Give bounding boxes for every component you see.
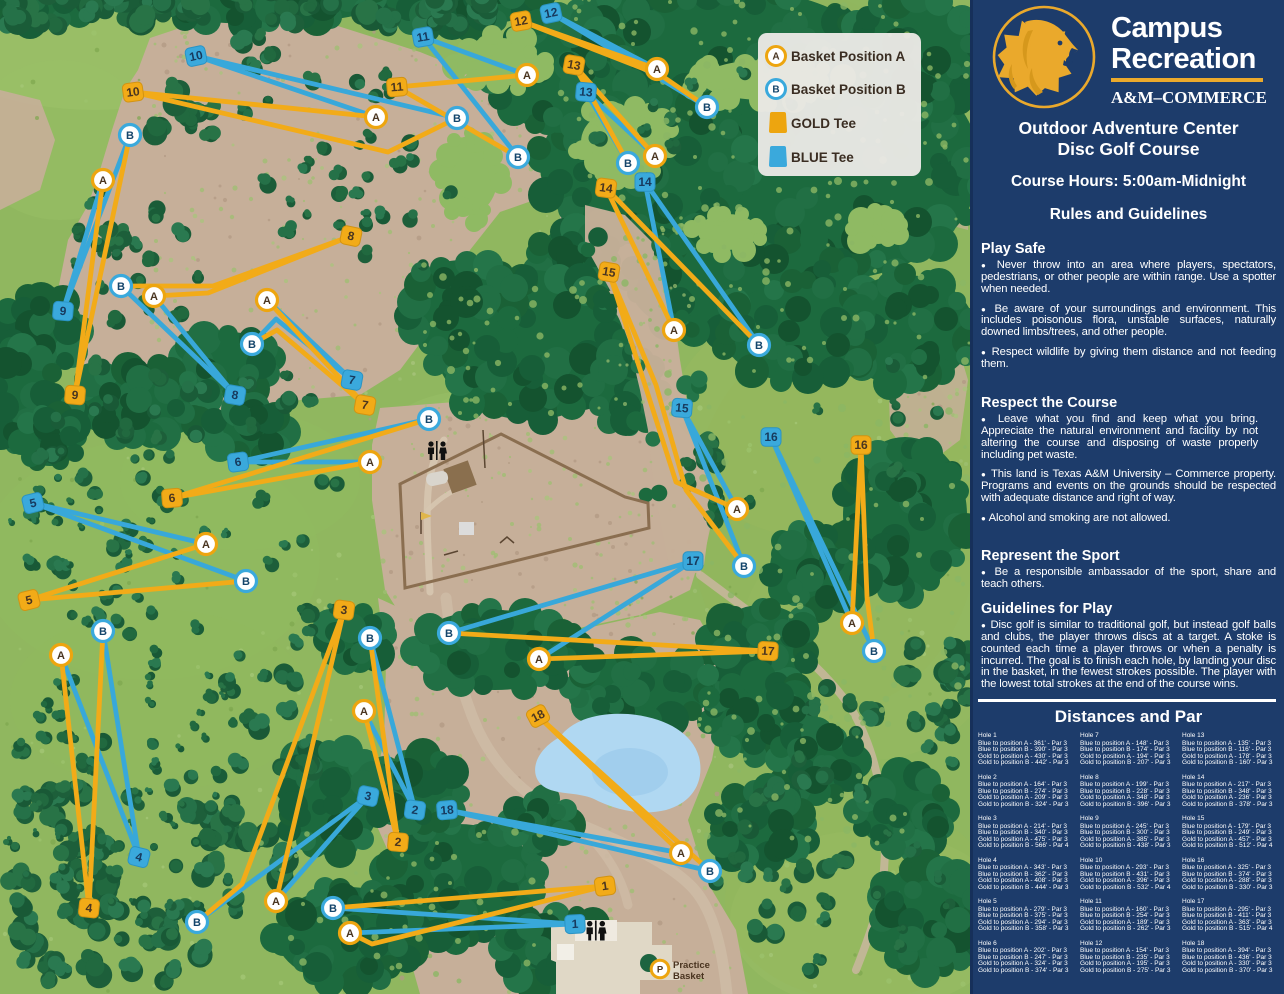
svg-text:GOLD Tee: GOLD Tee [791, 116, 857, 131]
svg-text:A: A [733, 504, 741, 516]
svg-text:16: 16 [854, 438, 868, 452]
svg-text:Basket Position A: Basket Position A [791, 49, 906, 64]
svg-text:1: 1 [571, 917, 579, 931]
svg-text:A: A [670, 325, 678, 337]
svg-text:17: 17 [761, 644, 775, 659]
svg-text:B: B [703, 102, 711, 114]
svg-text:A: A [848, 618, 856, 630]
svg-text:A: A [366, 457, 374, 469]
svg-text:BLUE Tee: BLUE Tee [791, 150, 854, 165]
svg-text:B: B [248, 339, 256, 351]
svg-text:12: 12 [513, 13, 529, 29]
svg-text:14: 14 [598, 180, 613, 196]
svg-text:A: A [150, 291, 158, 303]
svg-text:14: 14 [638, 175, 652, 189]
svg-text:18: 18 [440, 802, 455, 817]
svg-text:A: A [677, 848, 685, 860]
svg-text:A: A [346, 928, 354, 940]
svg-text:B: B [242, 576, 250, 588]
svg-text:B: B [117, 281, 125, 293]
svg-text:13: 13 [566, 57, 582, 73]
svg-text:17: 17 [686, 554, 700, 568]
svg-text:A: A [57, 650, 65, 662]
svg-text:A: A [535, 654, 543, 666]
svg-text:B: B [706, 866, 714, 878]
svg-text:11: 11 [390, 79, 404, 94]
svg-text:B: B [772, 85, 779, 96]
svg-text:B: B [193, 917, 201, 929]
svg-text:B: B [870, 646, 878, 658]
svg-text:B: B [366, 633, 374, 645]
svg-text:A: A [360, 706, 368, 718]
svg-text:B: B [445, 628, 453, 640]
svg-text:B: B [624, 158, 632, 170]
svg-text:Basket Position B: Basket Position B [791, 82, 906, 97]
svg-text:15: 15 [601, 264, 617, 280]
svg-text:B: B [329, 903, 337, 915]
svg-text:10: 10 [125, 84, 140, 100]
svg-text:B: B [425, 414, 433, 426]
svg-text:A: A [272, 896, 280, 908]
svg-text:13: 13 [579, 84, 594, 99]
svg-text:A: A [653, 64, 661, 76]
svg-text:B: B [126, 130, 134, 142]
svg-text:Basket: Basket [673, 971, 705, 982]
svg-text:B: B [755, 340, 763, 352]
svg-text:B: B [99, 626, 107, 638]
svg-text:P: P [657, 965, 664, 976]
svg-text:A: A [372, 112, 380, 124]
svg-text:B: B [740, 561, 748, 573]
svg-text:A: A [523, 70, 531, 82]
svg-text:16: 16 [764, 430, 778, 444]
svg-text:A: A [99, 175, 107, 187]
svg-text:B: B [514, 152, 522, 164]
svg-text:A: A [772, 52, 779, 63]
svg-text:Practice: Practice [673, 960, 710, 971]
svg-text:B: B [453, 113, 461, 125]
svg-text:A: A [202, 539, 210, 551]
svg-text:15: 15 [675, 400, 690, 415]
svg-text:A: A [263, 295, 271, 307]
svg-text:A: A [651, 151, 659, 163]
